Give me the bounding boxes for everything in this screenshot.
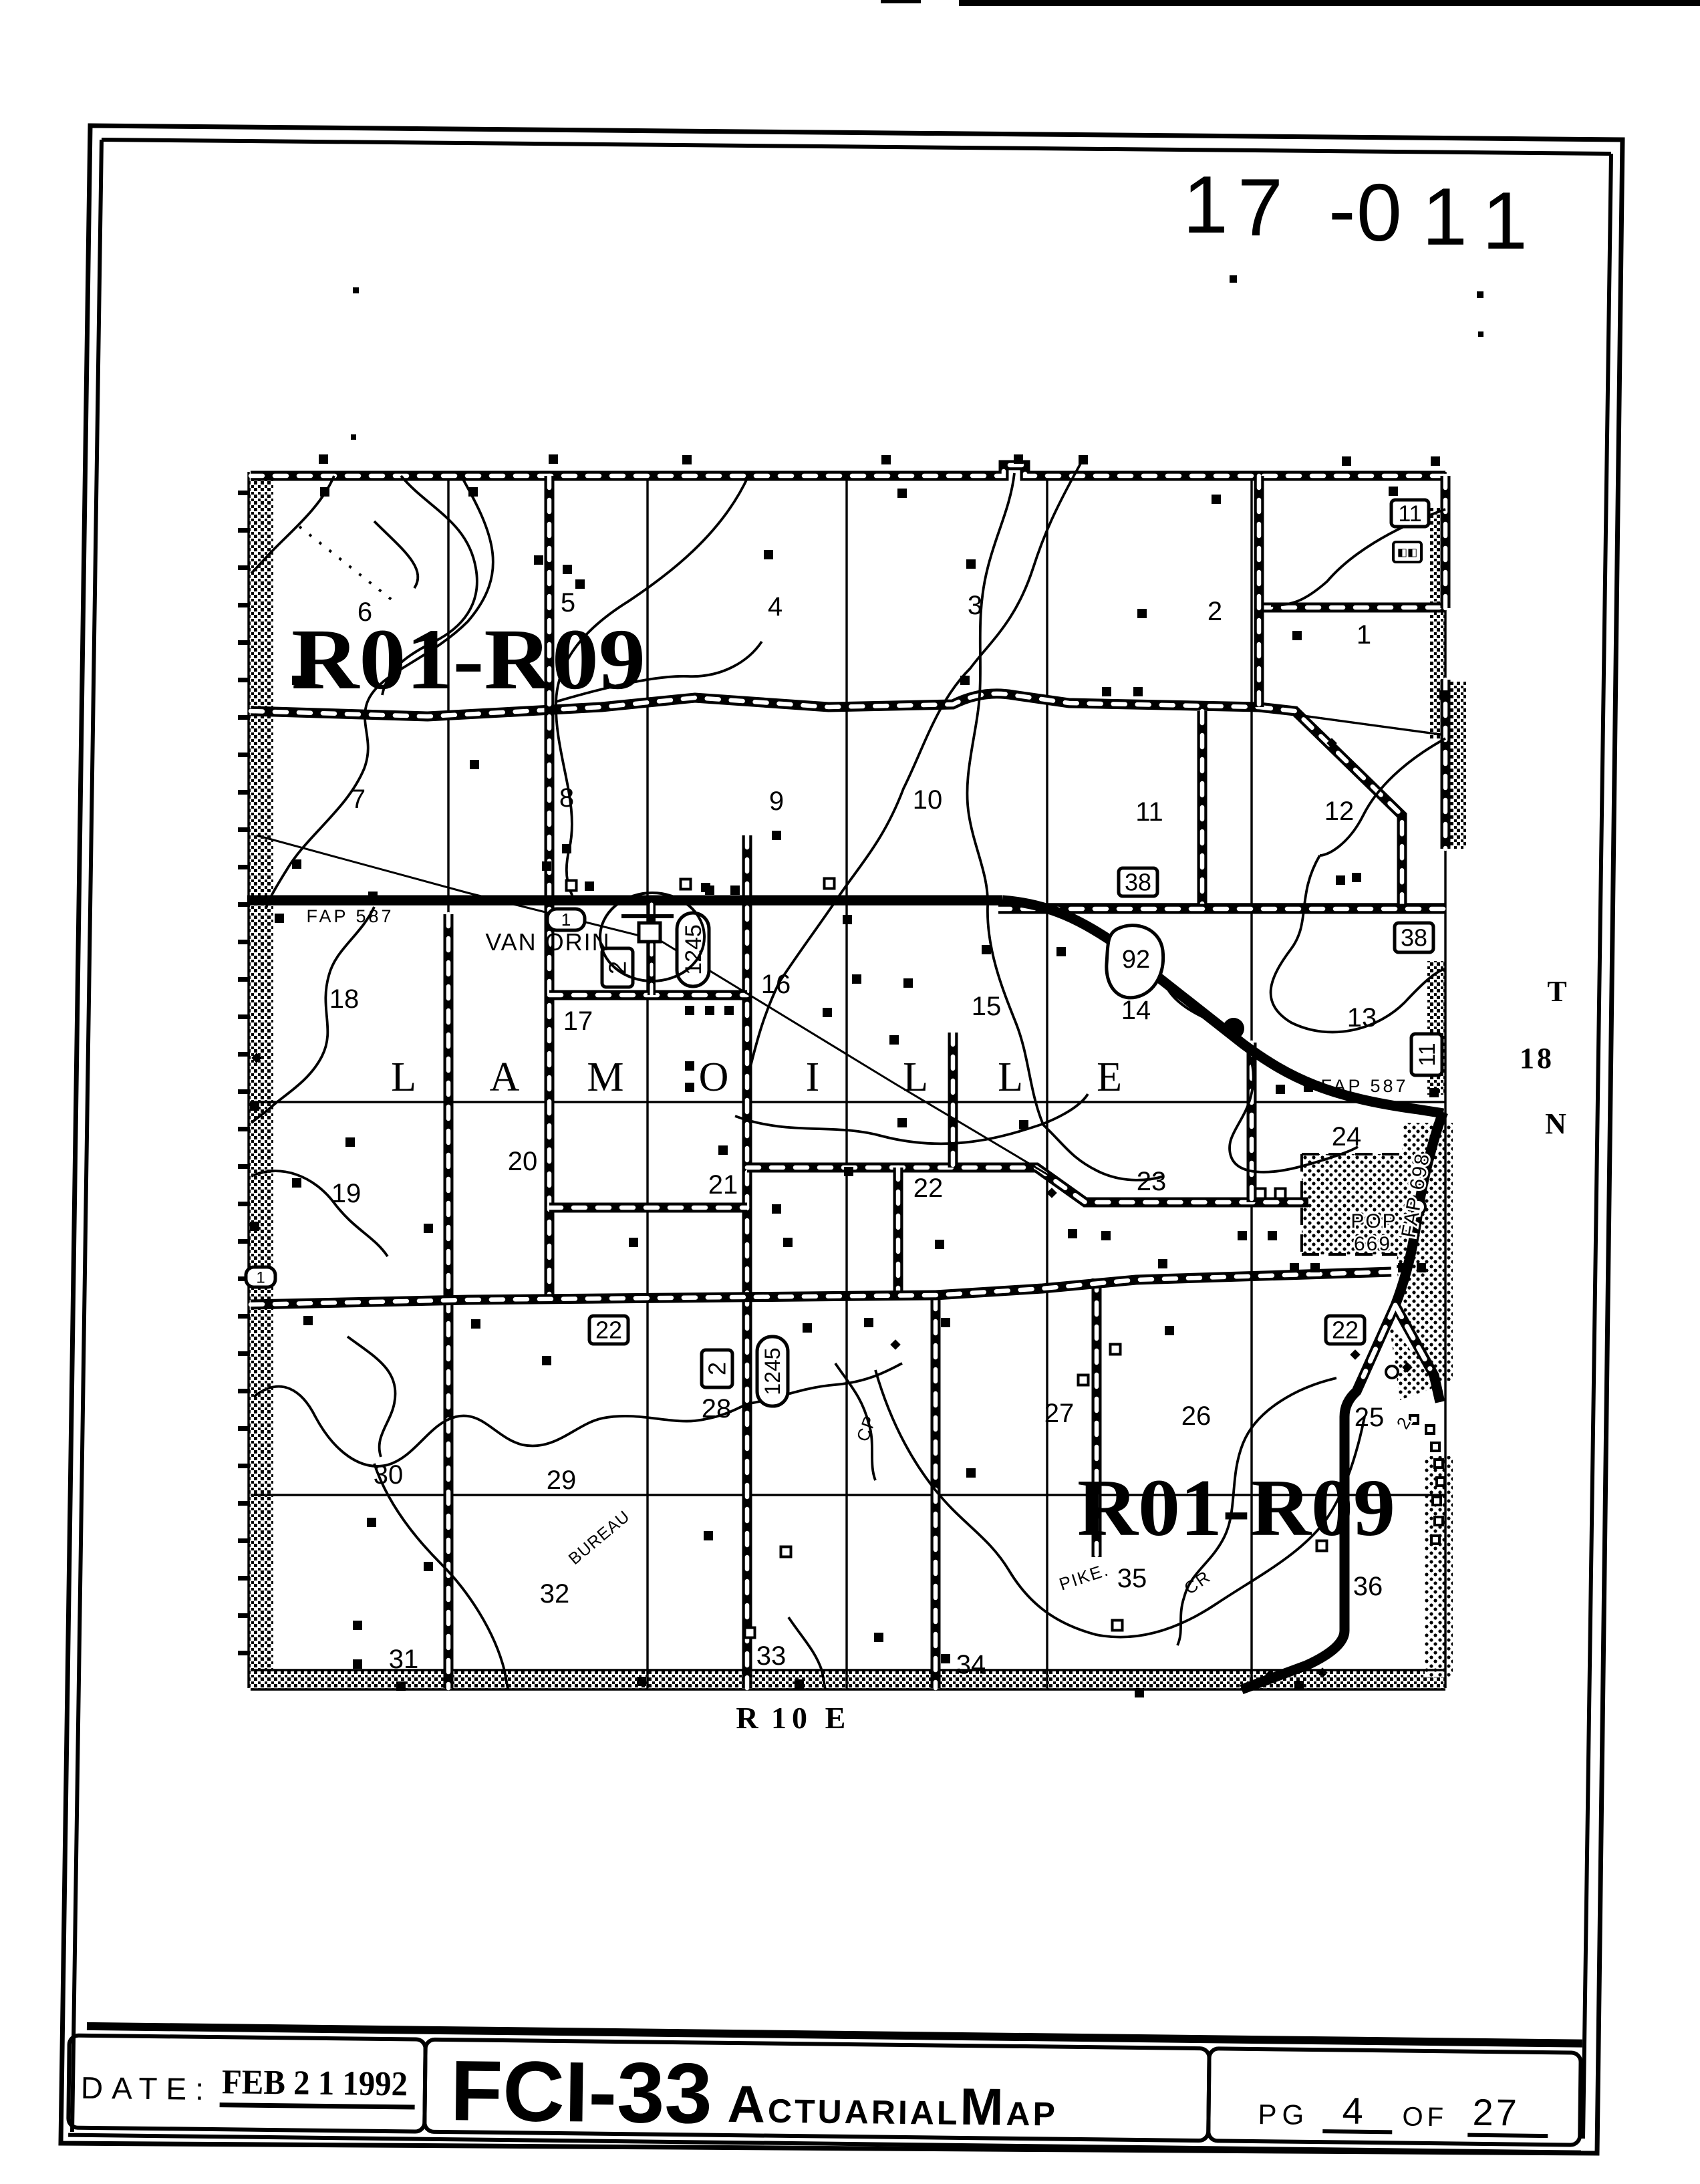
- svg-text:R01-R09: R01-R09: [291, 611, 646, 708]
- svg-text:30: 30: [374, 1460, 404, 1490]
- svg-text:22: 22: [1332, 1317, 1359, 1344]
- svg-text:16: 16: [761, 970, 791, 999]
- svg-text:92: 92: [1122, 946, 1150, 974]
- svg-text:19: 19: [331, 1179, 362, 1208]
- svg-text:18: 18: [329, 984, 360, 1014]
- svg-text:33: 33: [756, 1641, 787, 1671]
- svg-text:9: 9: [769, 787, 784, 816]
- svg-text:15: 15: [972, 992, 1002, 1021]
- svg-text:22: 22: [913, 1174, 944, 1203]
- svg-text:6: 6: [358, 597, 372, 627]
- svg-text:11: 11: [1398, 501, 1421, 527]
- svg-text:34: 34: [956, 1650, 986, 1679]
- svg-text:36: 36: [1353, 1572, 1383, 1601]
- svg-text:I: I: [806, 1055, 820, 1100]
- svg-text:38: 38: [1125, 869, 1151, 896]
- svg-text:32: 32: [540, 1579, 570, 1609]
- svg-text:L: L: [391, 1055, 416, 1100]
- svg-text:1: 1: [1357, 620, 1371, 650]
- svg-text:0: 0: [1357, 167, 1402, 258]
- svg-text:35: 35: [1117, 1564, 1147, 1593]
- svg-text:1: 1: [1422, 171, 1467, 262]
- svg-text:669: 669: [1354, 1233, 1391, 1255]
- svg-text:A: A: [490, 1055, 520, 1100]
- svg-text:OF: OF: [1402, 2102, 1447, 2133]
- svg-text:31: 31: [389, 1645, 419, 1674]
- svg-text:23: 23: [1137, 1167, 1167, 1196]
- svg-text:FAP 587: FAP 587: [1320, 1076, 1408, 1096]
- svg-text:10: 10: [913, 785, 943, 815]
- svg-text:1245: 1245: [760, 1347, 785, 1395]
- svg-text:E: E: [1097, 1055, 1122, 1100]
- svg-text:28: 28: [702, 1394, 732, 1423]
- svg-text:2: 2: [604, 961, 631, 974]
- svg-text:11: 11: [1415, 1043, 1440, 1066]
- svg-text:8: 8: [559, 783, 574, 813]
- svg-text:L: L: [998, 1055, 1023, 1100]
- svg-text:18: 18: [1520, 1042, 1554, 1075]
- svg-text:1: 1: [1482, 175, 1528, 266]
- svg-text:14: 14: [1121, 996, 1151, 1025]
- svg-text:13: 13: [1347, 1003, 1377, 1033]
- svg-text:FEB 2 1 1992: FEB 2 1 1992: [222, 2063, 408, 2103]
- svg-text:POP: POP: [1351, 1210, 1397, 1232]
- svg-text:11: 11: [1135, 797, 1163, 827]
- svg-text:29: 29: [547, 1466, 577, 1495]
- svg-text:1: 1: [256, 1268, 265, 1286]
- svg-text:R01-R09: R01-R09: [1077, 1463, 1395, 1553]
- svg-text:T: T: [1547, 975, 1566, 1008]
- svg-text:5: 5: [561, 588, 575, 618]
- svg-text:2: 2: [704, 1362, 731, 1375]
- svg-text:12: 12: [1324, 797, 1355, 826]
- svg-text:4: 4: [768, 592, 783, 622]
- svg-text:O: O: [699, 1055, 729, 1100]
- svg-text:27: 27: [1472, 2091, 1520, 2134]
- svg-text:4: 4: [1342, 2090, 1363, 2132]
- svg-text:FAP 587: FAP 587: [306, 906, 394, 926]
- svg-text:3: 3: [968, 591, 982, 620]
- svg-text:R: R: [736, 1701, 758, 1735]
- svg-text:21: 21: [708, 1170, 738, 1200]
- svg-text:7: 7: [351, 785, 366, 814]
- svg-text:-: -: [1328, 164, 1356, 255]
- svg-text:38: 38: [1401, 924, 1427, 952]
- svg-text:22: 22: [595, 1317, 622, 1344]
- svg-text:◧◧: ◧◧: [1397, 547, 1417, 559]
- svg-text:26: 26: [1181, 1401, 1212, 1431]
- svg-text:17: 17: [563, 1006, 593, 1036]
- svg-text:2: 2: [1208, 597, 1222, 626]
- svg-text:1: 1: [1183, 159, 1228, 250]
- svg-text:24: 24: [1332, 1122, 1362, 1151]
- svg-text:27: 27: [1044, 1399, 1075, 1428]
- svg-text:N: N: [1545, 1107, 1566, 1140]
- svg-text:M: M: [587, 1055, 623, 1100]
- svg-text:1: 1: [561, 910, 571, 930]
- svg-text:L: L: [903, 1055, 928, 1100]
- svg-text:DATE:: DATE:: [81, 2070, 213, 2106]
- svg-text:7: 7: [1238, 162, 1283, 253]
- svg-text:20: 20: [508, 1147, 538, 1176]
- svg-text:10: 10: [771, 1701, 813, 1735]
- svg-text:25: 25: [1355, 1403, 1385, 1432]
- svg-text:FCI-33: FCI-33: [450, 2043, 713, 2142]
- svg-text:E: E: [825, 1701, 846, 1735]
- svg-text:PG: PG: [1258, 2098, 1309, 2131]
- svg-text:VAN ORIN: VAN ORIN: [485, 928, 610, 956]
